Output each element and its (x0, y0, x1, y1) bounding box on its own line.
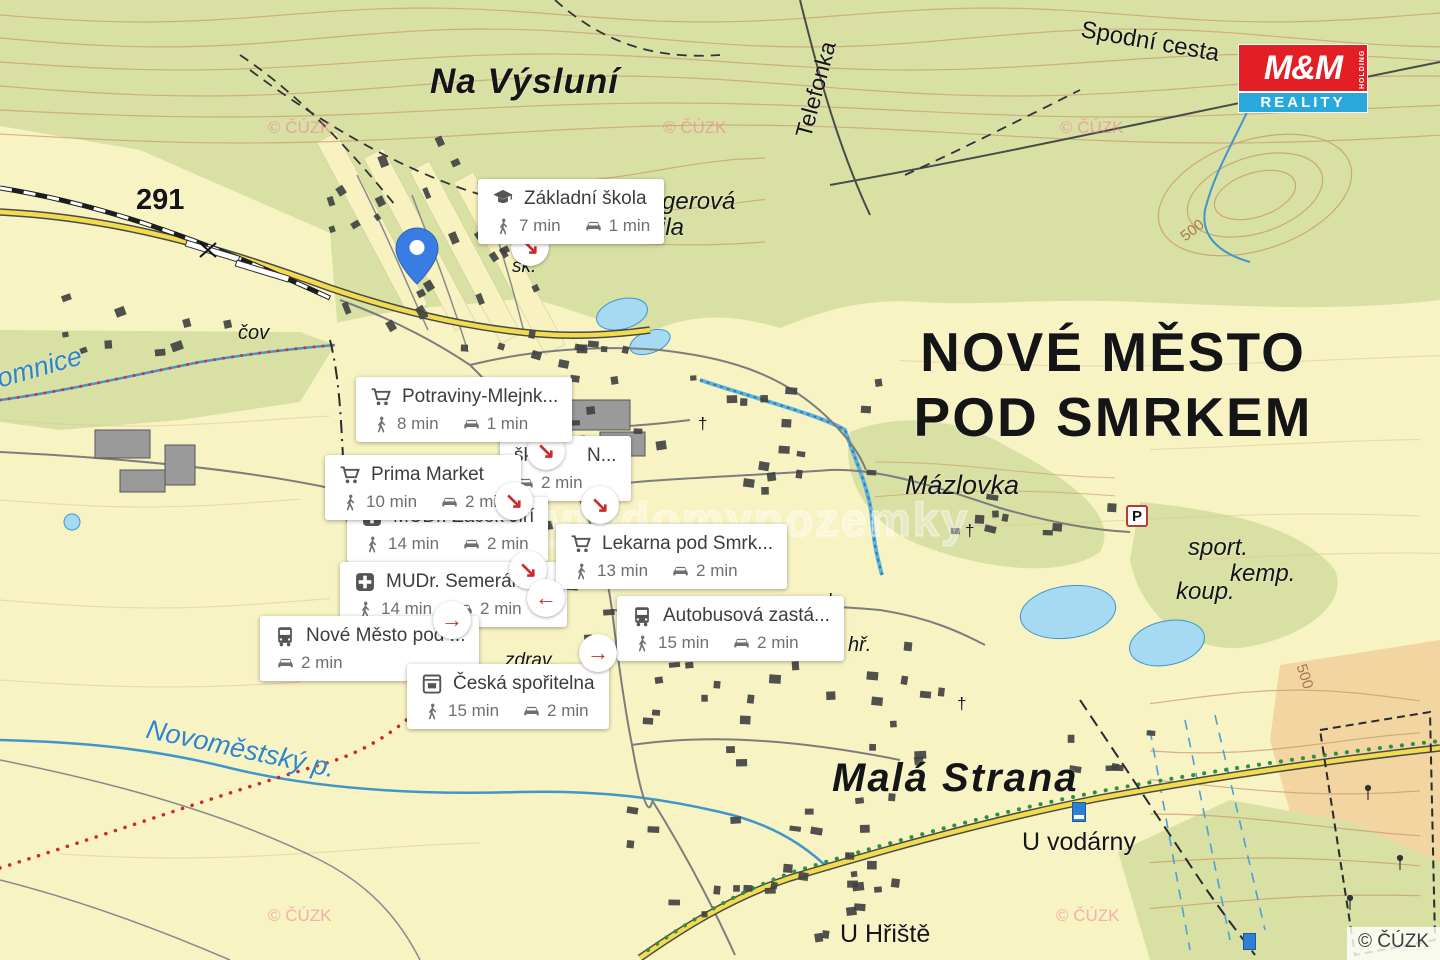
logo-red-block: M&M HOLDING (1239, 45, 1367, 91)
church-cross-icon: † (698, 414, 707, 434)
cuzk-watermark: © ČÚZK (268, 118, 332, 138)
label-city-line2: POD SMRKEM (883, 385, 1343, 449)
walk-time: 15 min (448, 701, 499, 721)
poi-title: Základní škola (524, 188, 647, 210)
cuzk-watermark: © ČÚZK (1056, 906, 1120, 926)
cuzk-watermark: © ČÚZK (663, 118, 727, 138)
arrow-icon: ↘ (519, 559, 537, 581)
map-screenshot: Na Výsluní 291 čov omnice Telefonka Spod… (0, 0, 1440, 960)
arrow-icon: ↘ (505, 490, 523, 512)
walk-time: 13 min (597, 561, 648, 581)
water-feature-icon (1243, 933, 1256, 950)
car-icon (277, 655, 294, 672)
route-marker[interactable]: → (579, 634, 617, 672)
bus-icon (274, 625, 296, 647)
route-marker[interactable]: ↘ (581, 486, 619, 524)
drive-time: 1 min (609, 216, 651, 236)
car-icon (463, 416, 480, 433)
walk-time: 10 min (366, 492, 417, 512)
copyright-bar: © ČÚZK (1347, 927, 1440, 960)
property-pin[interactable] (393, 226, 441, 291)
car-icon (463, 536, 480, 553)
drive-time: 2 min (696, 561, 738, 581)
route-marker[interactable]: → (433, 601, 471, 639)
walk-icon (634, 635, 651, 652)
bus-icon (631, 605, 653, 627)
logo-holding-text: HOLDING (1359, 47, 1366, 89)
walk-icon (342, 494, 359, 511)
parking-icon: P (1126, 505, 1148, 527)
label-kemp: kemp. (1230, 560, 1295, 588)
label-road-291: 291 (136, 184, 184, 217)
poi-potraviny[interactable]: Potraviny-Mlejnk... 8 min1 min (356, 377, 572, 442)
route-marker[interactable]: ↘ (495, 482, 533, 520)
cart-icon (339, 464, 361, 486)
arrow-icon: → (441, 609, 463, 631)
poi-title: Prima Market (371, 464, 484, 486)
car-icon (672, 563, 689, 580)
walk-icon (495, 218, 512, 235)
medical-cross-icon (354, 571, 376, 593)
walk-time: 7 min (519, 216, 561, 236)
arrow-icon: ↘ (591, 494, 609, 516)
drive-time: 2 min (757, 633, 799, 653)
map-canvas (0, 0, 1440, 960)
poi-title: Autobusová zastá... (663, 605, 830, 627)
walk-icon (364, 536, 381, 553)
arrow-icon: → (587, 642, 609, 664)
arrow-icon: ↘ (537, 440, 555, 462)
label-cov: čov (238, 322, 269, 345)
mm-reality-logo: M&M HOLDING REALITY (1238, 44, 1368, 113)
poi-ceska-sporitelna[interactable]: Česká spořitelna 15 min2 min (407, 664, 609, 729)
label-hr: hř. (848, 634, 871, 657)
walk-icon (357, 601, 374, 618)
label-koup: koup. (1176, 578, 1235, 606)
cuzk-watermark: © ČÚZK (268, 906, 332, 926)
label-u-vodarny: U vodárny (1022, 828, 1136, 857)
drive-time: 2 min (547, 701, 589, 721)
car-icon (523, 703, 540, 720)
cuzk-watermark: © ČÚZK (1060, 118, 1124, 138)
label-na-vysluni: Na Výsluní (430, 62, 619, 102)
drive-time: 2 min (480, 599, 522, 619)
route-marker[interactable]: ← (527, 579, 565, 617)
car-icon (585, 218, 602, 235)
drive-time: 1 min (487, 414, 529, 434)
label-u-hriste: U Hřiště (840, 920, 930, 949)
walk-time: 8 min (397, 414, 439, 434)
walk-time: 14 min (388, 534, 439, 554)
cart-icon (570, 533, 592, 555)
poi-lekarna[interactable]: Lekarna pod Smrk... 13 min2 min (556, 524, 787, 589)
poi-title: Lekarna pod Smrk... (602, 533, 773, 555)
label-sport: sport. (1188, 534, 1248, 562)
drive-time: 2 min (301, 653, 343, 673)
poi-zakladni-skola[interactable]: Základní škola 7 min1 min (478, 179, 664, 244)
walk-time: 15 min (658, 633, 709, 653)
poi-title-right: N... (587, 445, 617, 467)
poi-title: Česká spořitelna (453, 673, 595, 695)
poi-title: Potraviny-Mlejnk... (402, 386, 558, 408)
poi-prima-market[interactable]: Prima Market 10 min2 min (325, 455, 521, 520)
car-icon (441, 494, 458, 511)
walk-icon (573, 563, 590, 580)
cart-icon (370, 386, 392, 408)
logo-mm-text: M&M (1264, 49, 1342, 88)
drive-time: 2 min (541, 473, 583, 493)
label-city-line1: NOVÉ MĚSTO (883, 320, 1343, 384)
poi-autobusova-zastavka[interactable]: Autobusová zastá... 15 min2 min (617, 596, 844, 661)
atm-icon (421, 673, 443, 695)
church-cross-icon: † (957, 694, 966, 714)
car-icon (733, 635, 750, 652)
school-icon (492, 188, 514, 210)
waterworks-icon (1072, 802, 1086, 822)
logo-blue-block: REALITY (1239, 91, 1367, 112)
logo-reality-text: REALITY (1260, 94, 1345, 111)
walk-icon (373, 416, 390, 433)
arrow-icon: ← (535, 587, 557, 609)
label-mala-strana: Malá Strana (832, 756, 1079, 801)
walk-icon (424, 703, 441, 720)
